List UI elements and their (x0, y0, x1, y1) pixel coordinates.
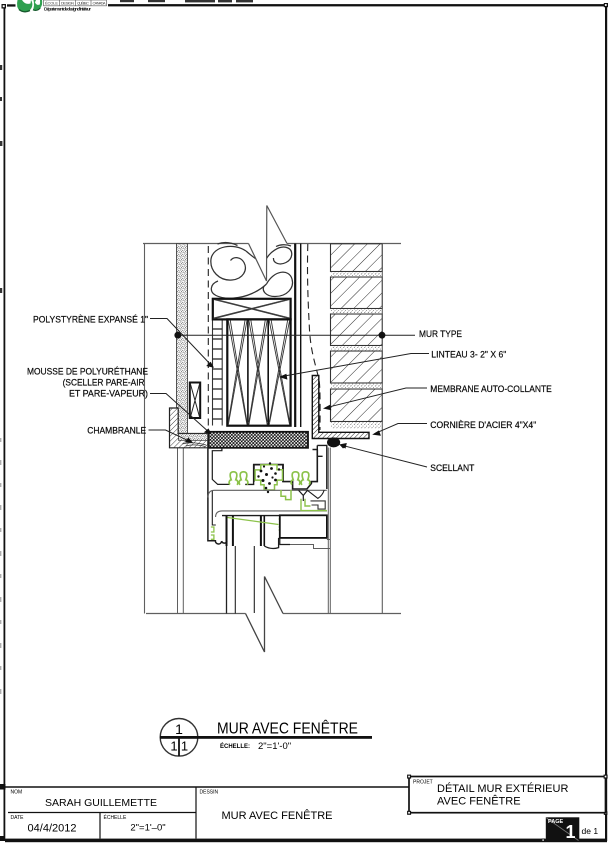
svg-text:POLYSTYRÈNE EXPANSÉ 1": POLYSTYRÈNE EXPANSÉ 1" (33, 315, 148, 325)
svg-text:CORNIÈRE D'ACIER 4"X4": CORNIÈRE D'ACIER 4"X4" (430, 420, 536, 430)
svg-text:PAGE: PAGE (548, 819, 564, 825)
svg-text:AVEC FENÊTRE: AVEC FENÊTRE (437, 795, 521, 808)
svg-text:DESIGN: DESIGN (61, 1, 74, 6)
svg-text:MUR TYPE: MUR TYPE (419, 329, 462, 339)
svg-text:de 1: de 1 (582, 826, 599, 836)
svg-text:CHAMBRANLE: CHAMBRANLE (87, 426, 146, 436)
svg-text:MOUSSE DE POLYURÉTHANE: MOUSSE DE POLYURÉTHANE (27, 367, 148, 377)
svg-text:NOM: NOM (11, 790, 23, 796)
svg-text:CANADA: CANADA (93, 1, 106, 6)
svg-text:(SCELLER PARE-AIR: (SCELLER PARE-AIR (63, 378, 145, 388)
svg-text:PROJET: PROJET (413, 780, 433, 786)
svg-text:MEMBRANE AUTO-COLLANTE: MEMBRANE AUTO-COLLANTE (430, 384, 552, 394)
svg-text:2"=1'–0": 2"=1'–0" (130, 823, 165, 834)
svg-text:04/4/2012: 04/4/2012 (28, 823, 77, 835)
svg-text:1: 1 (565, 822, 575, 842)
svg-text:ÉCHELLE:: ÉCHELLE: (220, 742, 250, 750)
svg-text:1: 1 (181, 739, 188, 754)
svg-text:MUR AVEC FENÊTRE: MUR AVEC FENÊTRE (221, 809, 332, 822)
svg-text:QUÉBEC: QUÉBEC (77, 1, 89, 6)
svg-text:SCELLANT: SCELLANT (430, 463, 474, 473)
svg-text:ÉCHELLE: ÉCHELLE (104, 814, 127, 821)
svg-text:DESSIN: DESSIN (200, 790, 219, 796)
svg-text:ET PARE-VAPEUR): ET PARE-VAPEUR) (69, 389, 148, 399)
svg-text:1: 1 (175, 721, 183, 737)
svg-text:Département de design d'intéri: Département de design d'intérieur (44, 7, 91, 13)
svg-text:DATE: DATE (11, 815, 25, 821)
svg-text:LINTEAU 3- 2" X 6": LINTEAU 3- 2" X 6" (431, 350, 506, 360)
svg-text:2"=1'-0": 2"=1'-0" (258, 741, 291, 752)
svg-text:SARAH GUILLEMETTE: SARAH GUILLEMETTE (45, 797, 157, 809)
svg-text:DÉTAIL MUR EXTÉRIEUR: DÉTAIL MUR EXTÉRIEUR (437, 782, 568, 795)
svg-text:MUR AVEC FENÊTRE: MUR AVEC FENÊTRE (217, 719, 358, 738)
svg-text:ÉCOLE: ÉCOLE (45, 1, 58, 6)
svg-text:1: 1 (170, 739, 177, 754)
